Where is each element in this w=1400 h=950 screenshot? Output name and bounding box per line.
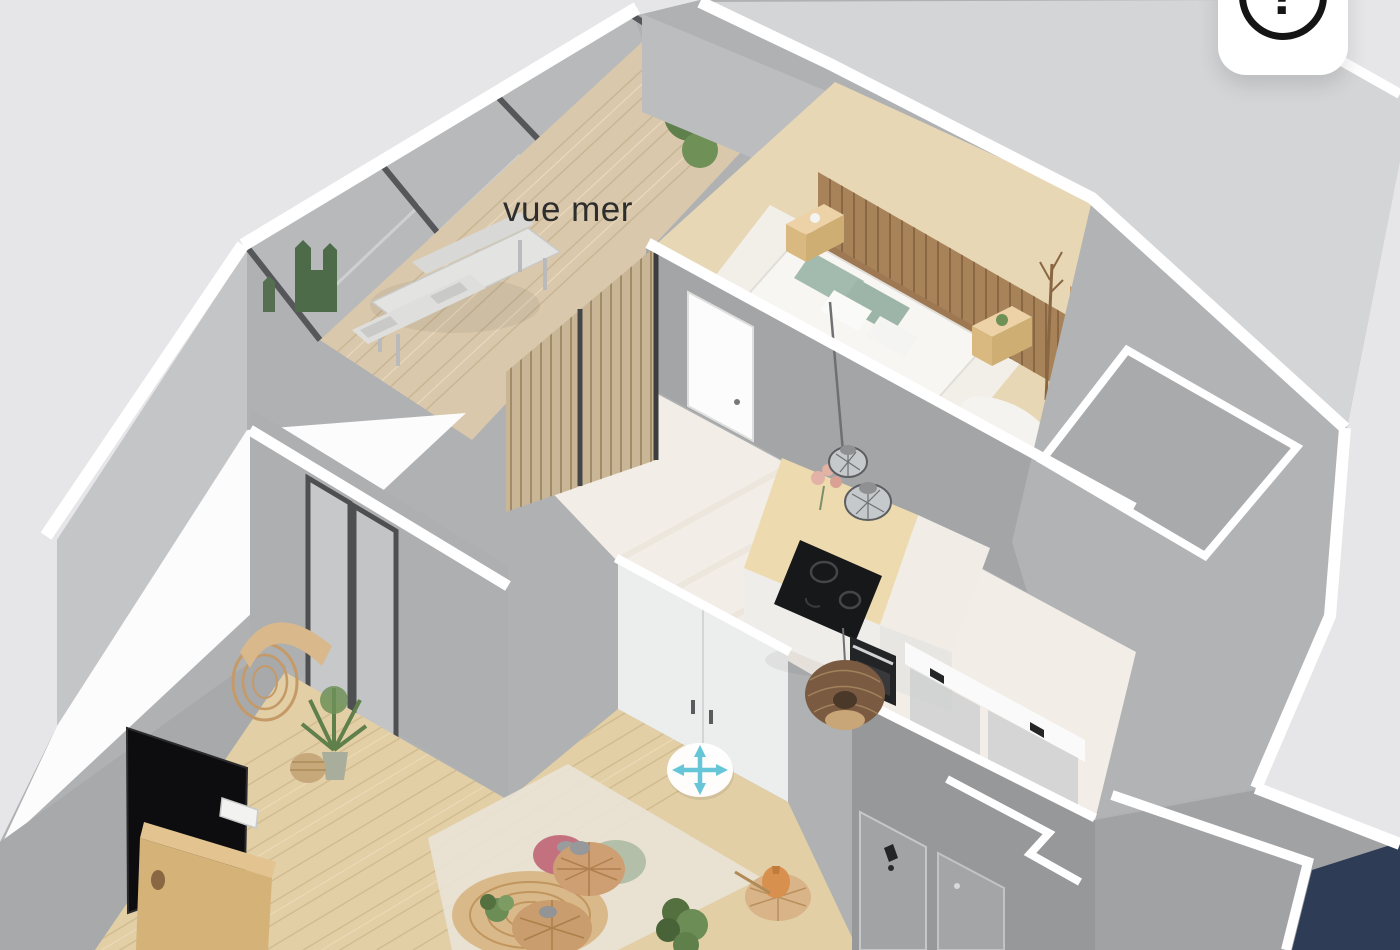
closet-handle bbox=[691, 700, 695, 714]
plant-pot bbox=[322, 752, 348, 780]
door-handle bbox=[734, 399, 740, 405]
balcony-view-label: vue mer bbox=[503, 190, 633, 230]
basket[interactable] bbox=[290, 753, 326, 783]
question-mark-icon: ? bbox=[1239, 0, 1327, 40]
decor-vase bbox=[151, 870, 165, 890]
floorplan-app: vue mer ? bbox=[0, 0, 1400, 950]
vase-neck bbox=[772, 866, 780, 874]
table-lamp bbox=[810, 213, 820, 223]
help-button[interactable]: ? bbox=[1218, 0, 1348, 75]
door-lock bbox=[888, 865, 894, 871]
nightstand-plant bbox=[996, 314, 1008, 326]
door-handle bbox=[954, 883, 960, 889]
move-widget[interactable] bbox=[645, 725, 755, 815]
closet-handle bbox=[709, 710, 713, 724]
